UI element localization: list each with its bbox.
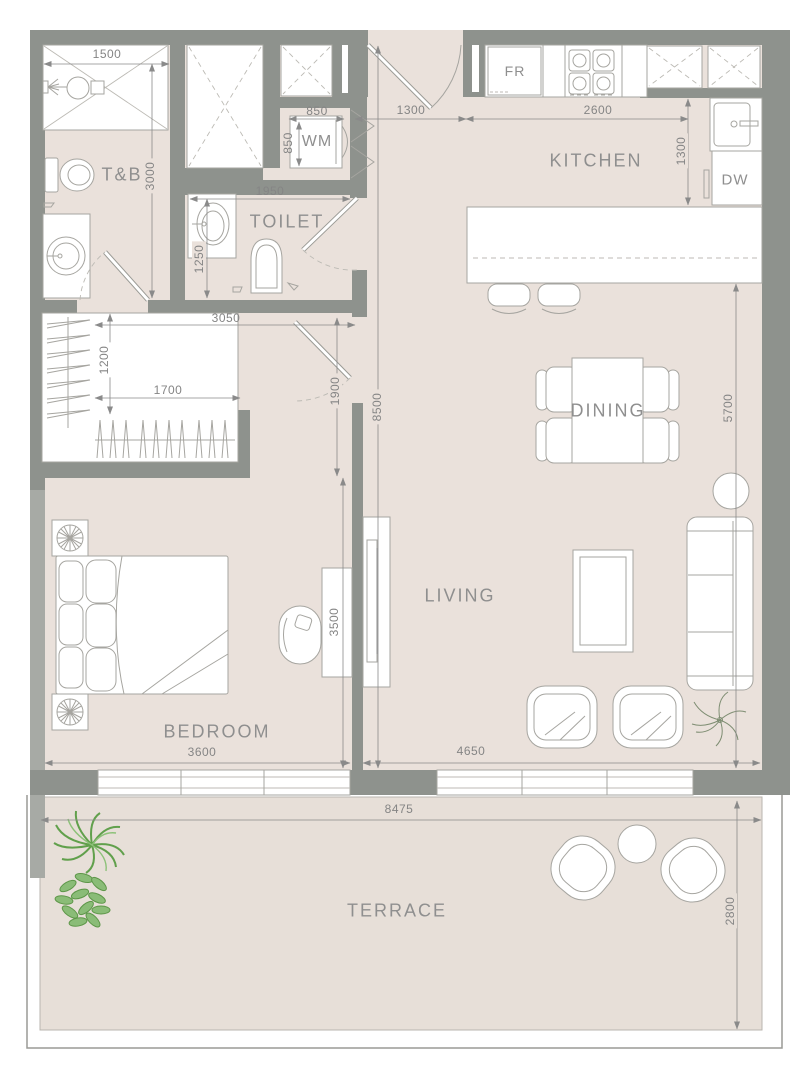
- nightstand-lamp: [52, 694, 88, 730]
- kitchen-island: [467, 207, 762, 283]
- armchair: [527, 686, 597, 748]
- duct-shaft-3: [647, 46, 702, 88]
- wardrobe: [42, 313, 238, 462]
- duct-shaft-2: [281, 45, 332, 96]
- tb-vanity: [43, 203, 90, 298]
- sofa: [687, 517, 753, 690]
- kitchen-sink: [710, 98, 762, 151]
- bedroom-window: [98, 770, 350, 795]
- floor-plan-drawing: [0, 0, 806, 1080]
- kitchen-counter: [485, 45, 647, 97]
- floor-plan: T&B TOILET KITCHEN DINING LIVING BEDROOM…: [0, 0, 806, 1080]
- side-table: [713, 473, 749, 509]
- shower: [43, 45, 168, 130]
- desk: [322, 568, 352, 677]
- desk-chair: [279, 606, 321, 664]
- toilet-vanity: [188, 194, 236, 258]
- bed: [56, 556, 228, 694]
- tb-wc: [45, 158, 94, 192]
- terrace-area: [40, 797, 762, 1030]
- coffee-table: [573, 550, 633, 652]
- living-window: [437, 770, 693, 795]
- dishwasher-unit: [704, 151, 762, 205]
- terrace-table: [618, 825, 656, 863]
- dining-table: [572, 358, 643, 463]
- duct-shaft-4: [708, 46, 760, 88]
- nightstand-lamp: [52, 520, 88, 556]
- tv: [367, 540, 377, 662]
- armchair: [613, 686, 683, 748]
- duct-shaft-1: [187, 45, 263, 168]
